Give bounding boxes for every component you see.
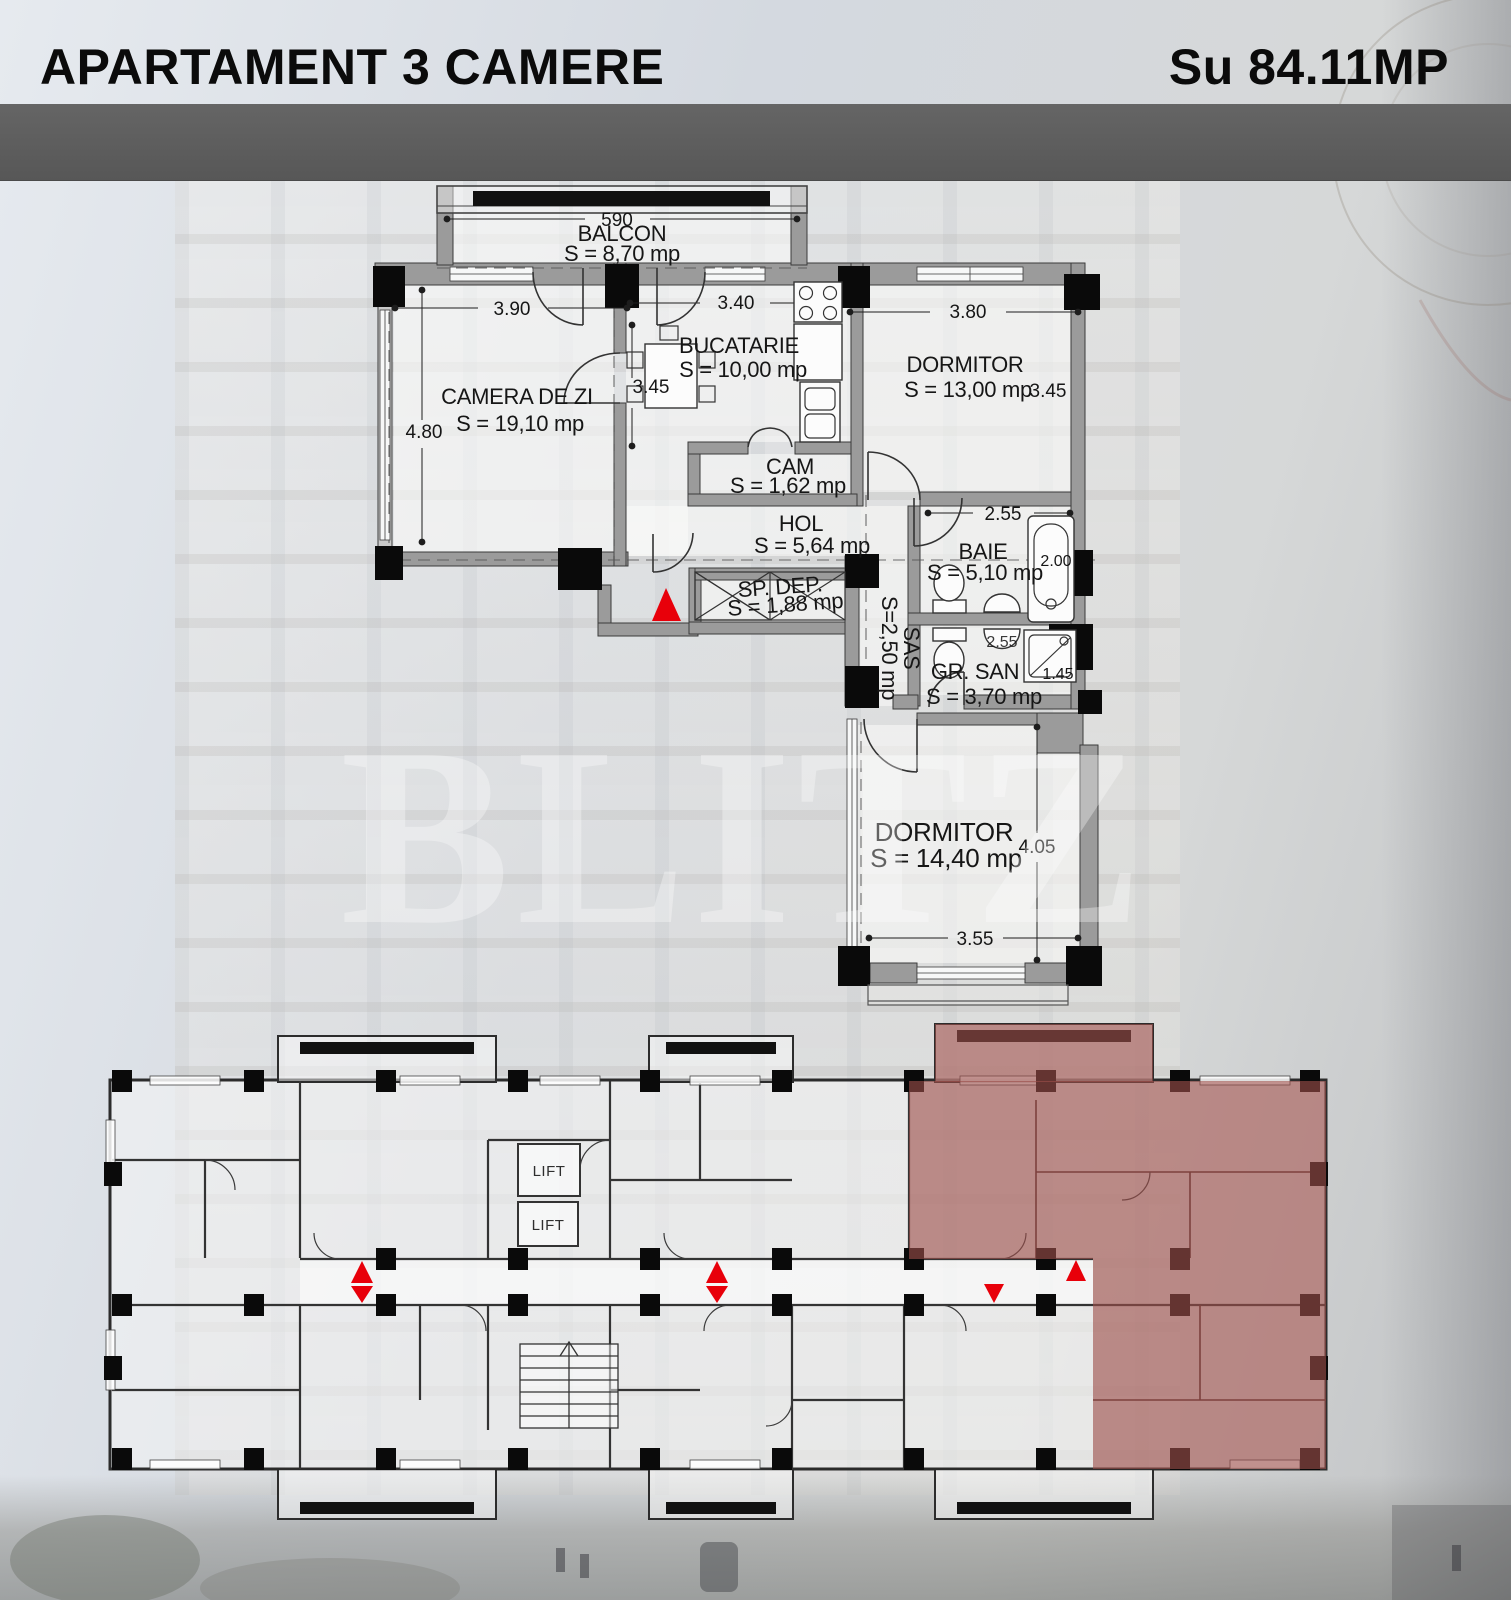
room-sas-area: S=2,50 mp bbox=[877, 596, 902, 700]
dim-balcon: 590 bbox=[601, 210, 633, 231]
dim-baie-d: 2.00 bbox=[1040, 553, 1071, 570]
dim-grsan-w: 2.55 bbox=[986, 634, 1017, 651]
poster: APARTAMENT 3 CAMERE Su 84.11MP bbox=[0, 0, 1511, 1600]
room-hol-area: S = 5,64 mp bbox=[754, 533, 870, 558]
staircase bbox=[520, 1342, 618, 1428]
dim-bucatarie-d: 3.45 bbox=[633, 377, 670, 398]
corridor bbox=[300, 1259, 1093, 1305]
lift-label-2: LIFT bbox=[532, 1217, 565, 1234]
room-baie-area: S = 5,10 mp bbox=[927, 560, 1043, 585]
room-cam-area: S = 1,62 mp bbox=[730, 473, 846, 498]
entrance-arrow bbox=[652, 588, 681, 621]
usable-surface-label: Su 84.11MP bbox=[1169, 38, 1449, 96]
dim-bucatarie-w: 3.40 bbox=[718, 293, 755, 314]
room-dormitor1-name: DORMITOR bbox=[907, 352, 1024, 377]
header-divider-bar bbox=[0, 104, 1511, 181]
dim-grsan-side: 1.45 bbox=[1042, 666, 1073, 683]
room-camera-name: CAMERA DE ZI bbox=[441, 384, 593, 409]
dim-camera-w: 3.90 bbox=[494, 299, 531, 320]
lift-label-1: LIFT bbox=[533, 1163, 566, 1180]
dim-camera-d: 4.80 bbox=[406, 422, 443, 443]
room-dormitor1-area: S = 13,00 mp bbox=[904, 377, 1032, 402]
dim-dormitor1-d: 3.45 bbox=[1030, 381, 1067, 402]
room-bucatarie-area: S = 10,00 mp bbox=[679, 357, 807, 382]
room-balcon-area: S = 8,70 mp bbox=[564, 241, 680, 266]
balcony-railing bbox=[437, 186, 807, 213]
dim-baie-w: 2.55 bbox=[985, 504, 1022, 525]
floor-overview-plan: LIFT LIFT bbox=[104, 1024, 1328, 1519]
dormitor2-balcony bbox=[868, 985, 1068, 1005]
room-camera-area: S = 19,10 mp bbox=[456, 411, 584, 436]
room-bucatarie-name: BUCATARIE bbox=[679, 333, 799, 358]
page-title: APARTAMENT 3 CAMERE bbox=[40, 38, 664, 96]
room-grsan-name: GR. SAN bbox=[931, 659, 1019, 684]
dim-dormitor1-w: 3.80 bbox=[950, 302, 987, 323]
watermark-text: BLITZ bbox=[340, 696, 1150, 978]
